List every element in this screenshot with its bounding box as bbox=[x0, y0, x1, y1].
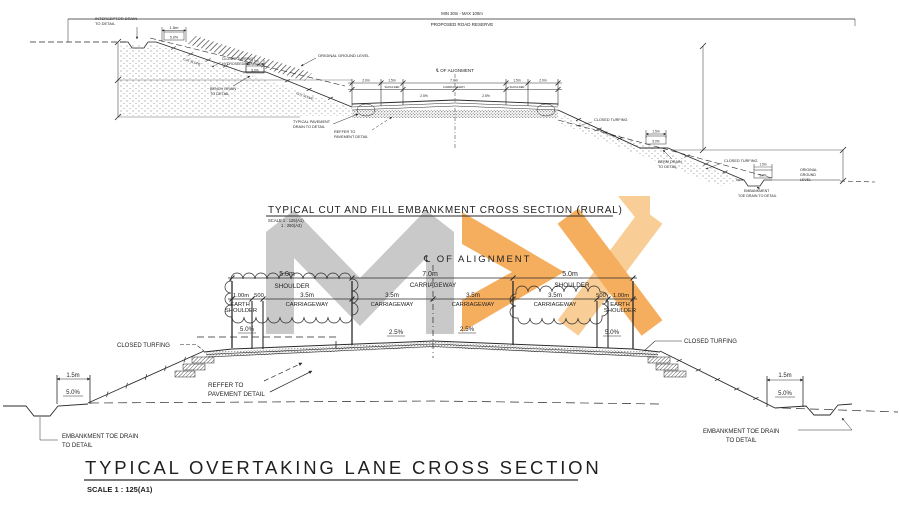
dim-500-left: 500 bbox=[254, 293, 264, 299]
berm-drain-label-line1: BERM DRAIN bbox=[658, 160, 682, 164]
dim-7-0m-center: 7.0m bbox=[422, 271, 438, 278]
original-ground-level-label: ORIGINAL GROUND LEVEL bbox=[318, 53, 370, 58]
embankment-toe-label-line2: TOE DRAIN TO DETAIL bbox=[738, 194, 777, 198]
fill-slope: CLOSED TURFING FILL SLOPE 1.5m 5.0% BERM… bbox=[558, 43, 875, 198]
label-carriageway-center: CARRIAGEWAY bbox=[410, 282, 457, 289]
toe-slope-5pct: 5.0% bbox=[759, 173, 766, 177]
bottom-scale-label: SCALE 1 : 125(A1) bbox=[87, 485, 153, 494]
top-dim-shoulder-right: 1.5m bbox=[513, 78, 521, 82]
right-step-3 bbox=[664, 371, 686, 377]
crossfall-5pct-left: 5.0% bbox=[240, 326, 255, 333]
typical-pavement-drain-line1: TYPICAL PAVEMENT bbox=[293, 120, 331, 124]
bench-slope-5pct: 5.0% bbox=[251, 69, 258, 73]
left-toe-drain: 1.5m 5.0% EMBANKMENT TOE DRAIN TO DETAIL bbox=[3, 373, 138, 449]
dim-3-5m-3: 3.5m bbox=[466, 292, 480, 299]
label-shoulder-left: SHOULDER bbox=[275, 283, 310, 290]
left-toe-label-line2: TO DETAIL bbox=[62, 443, 93, 449]
top-crossfall-left: 2.5% bbox=[420, 94, 428, 98]
reffer-label-line1: REFFER TO bbox=[208, 382, 244, 389]
drawing-sheet: MIN 30m - MAX 100m PROPOSED ROAD RESERVE… bbox=[0, 0, 900, 505]
left-step-2 bbox=[183, 364, 205, 370]
pavement-detail-callout: REFFER TO PAVEMENT DETAIL bbox=[208, 363, 312, 398]
typical-pavement-drain-line2: DRAIN TO DETAIL bbox=[293, 125, 325, 129]
drawing-canvas: MIN 30m - MAX 100m PROPOSED ROAD RESERVE… bbox=[0, 0, 900, 505]
label-carriageway-4: CARRIAGEWAY bbox=[534, 302, 577, 308]
label-carriageway-2: CARRIAGEWAY bbox=[371, 302, 414, 308]
closed-turfing-upper-label: CLOSED TURFING bbox=[594, 118, 628, 122]
top-diagram-title: TYPICAL CUT AND FILL EMBANKMENT CROSS SE… bbox=[268, 205, 623, 216]
original-ground-line bbox=[90, 401, 898, 412]
left-step-1 bbox=[192, 357, 214, 363]
right-toe-dim-1-5m: 1.5m bbox=[778, 373, 791, 379]
right-toe-slope-5pct: 5.0% bbox=[778, 391, 792, 397]
dim-500-right: 500 bbox=[596, 293, 606, 299]
top-crossfall-right: 2.5% bbox=[482, 94, 490, 98]
top-dim-verge-left: 2.0m bbox=[362, 78, 370, 82]
dim-1-00m-left: 1.00m bbox=[233, 293, 249, 299]
top-label-carriageway: CARRIAGEWAY bbox=[443, 85, 465, 89]
top-dim-verge-right: 2.0m bbox=[539, 78, 547, 82]
top-scale-line2: 1 : 250(A3) bbox=[281, 223, 302, 228]
original-ground-right-line1: ORIGINAL bbox=[800, 168, 817, 172]
crossfall-2-5pct-left: 2.5% bbox=[389, 329, 404, 336]
right-toe-label-line2: TO DETAIL bbox=[726, 438, 757, 444]
label-earth-shoulder-right: SHOULDER bbox=[604, 308, 636, 314]
dim-5-0m-right: 5.0m bbox=[562, 271, 578, 278]
road-surface bbox=[204, 341, 660, 358]
berm-slope-5pct: 5.0% bbox=[652, 140, 659, 144]
closed-turfing-lower-label: CLOSED TURFING bbox=[724, 159, 758, 163]
bench-drain-label-line2: TO DETAIL bbox=[210, 92, 229, 96]
left-embankment: CLOSED TURFING bbox=[88, 343, 214, 403]
original-ground-right-line2: GROUND bbox=[800, 173, 816, 177]
berm-drain-label-line2: TO DETAIL bbox=[658, 165, 677, 169]
crossfall-2-5pct-right: 2.5% bbox=[460, 326, 475, 333]
right-toe-label-line1: EMBANKMENT TOE DRAIN bbox=[703, 429, 779, 435]
reffer-label-line2: PAVEMENT DETAIL bbox=[208, 391, 265, 398]
closed-turfing-left-label: CLOSED TURFING bbox=[117, 343, 170, 349]
top-label-shoulder-left: SHOULDER bbox=[385, 85, 400, 89]
label-carriageway-3: CARRIAGEWAY bbox=[452, 302, 495, 308]
label-carriageway-1: CARRIAGEWAY bbox=[286, 302, 329, 308]
closed-turfing-hydroseeding-line1: CLOSED TURFING / bbox=[222, 57, 255, 61]
top-centerline-label: ℄ OF ALIGNMENT bbox=[435, 68, 474, 73]
embankment-toe-label-line1: EMBANKMENT bbox=[744, 189, 770, 193]
right-step-2 bbox=[656, 364, 678, 370]
berm-dim-1-5m: 1.5m bbox=[652, 130, 660, 134]
left-toe-slope-5pct: 5.0% bbox=[66, 390, 80, 396]
top-dim-carriageway: 7.0m bbox=[450, 78, 458, 82]
top-reffer-line1: REFFER TO bbox=[334, 130, 355, 134]
right-embankment: CLOSED TURFING bbox=[644, 339, 775, 408]
label-shoulder-right: SHOULDER bbox=[555, 282, 590, 289]
interceptor-dim-1-5m: 1.5m bbox=[170, 25, 180, 30]
construction-dashed-line bbox=[197, 337, 336, 348]
road-reserve-dim-label: MIN 30m - MAX 100m bbox=[441, 11, 483, 16]
toe-dim-1-5m: 1.5m bbox=[759, 163, 766, 167]
watermark-logo bbox=[266, 196, 652, 334]
bench-drain-label-line1: BENCH DRAIN bbox=[210, 87, 236, 91]
interceptor-drain: INTERCEPTOR DRAIN TO DETAIL 1.5m 5.0% bbox=[30, 16, 186, 48]
road-reserve-label: PROPOSED ROAD RESERVE bbox=[431, 22, 493, 27]
dim-1-00m-right: 1.00m bbox=[613, 293, 629, 299]
interceptor-drain-label-line2: TO DETAIL bbox=[95, 21, 116, 26]
bottom-centerline-label: ℄ OF ALIGNMENT bbox=[423, 254, 531, 265]
dim-3-5m-2: 3.5m bbox=[385, 292, 399, 299]
original-ground-right-line3: LEVEL bbox=[800, 178, 811, 182]
left-step-3 bbox=[175, 371, 195, 377]
closed-turfing-right-label: CLOSED TURFING bbox=[684, 339, 737, 345]
top-dim-shoulder-left: 1.5m bbox=[388, 78, 396, 82]
cut-slope: CUT SLOPE CUT SLOPE 2.0m 5.0% BENCH DRAI… bbox=[120, 36, 370, 116]
crossfall-5pct-right: 5.0% bbox=[605, 329, 620, 336]
top-reffer-line2: PAVEMENT DETAIL bbox=[334, 135, 368, 139]
left-toe-dim-1-5m: 1.5m bbox=[66, 373, 79, 379]
bottom-diagram-title: TYPICAL OVERTAKING LANE CROSS SECTION bbox=[85, 457, 602, 478]
top-diagram-cut-and-fill-section: MIN 30m - MAX 100m PROPOSED ROAD RESERVE… bbox=[30, 11, 875, 228]
dim-3-5m-4: 3.5m bbox=[548, 292, 562, 299]
bottom-title-block: TYPICAL OVERTAKING LANE CROSS SECTION SC… bbox=[84, 457, 602, 494]
right-step-1 bbox=[648, 357, 670, 363]
interceptor-slope-5pct: 5.0% bbox=[170, 36, 179, 40]
dim-3-5m-1: 3.5m bbox=[300, 292, 314, 299]
top-label-shoulder-right: SHOULDER bbox=[510, 85, 525, 89]
left-toe-label-line1: EMBANKMENT TOE DRAIN bbox=[62, 434, 138, 440]
